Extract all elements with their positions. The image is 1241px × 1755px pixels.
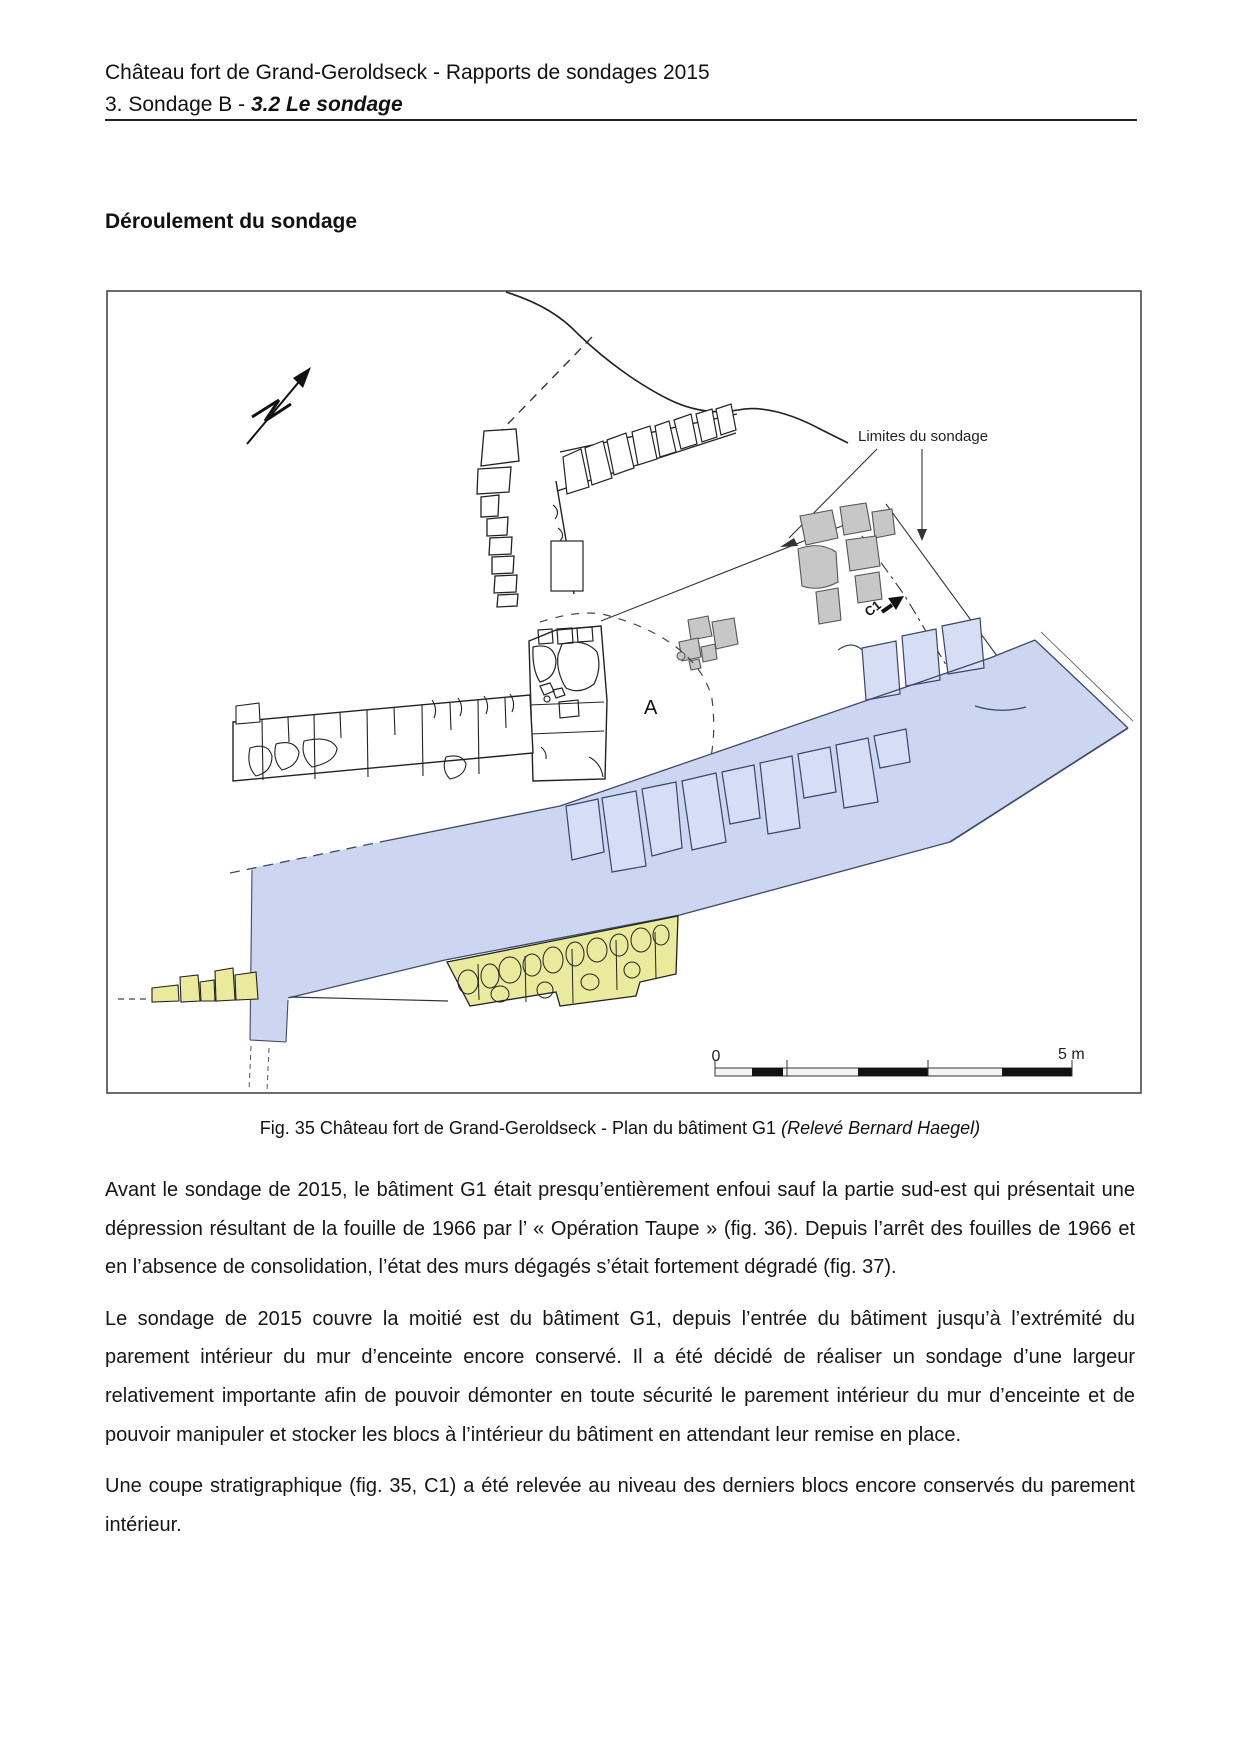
room-a-label: A (644, 697, 658, 719)
paragraph-coupe-stratigraphique: Une coupe stratigraphique (fig. 35, C1) … (105, 1467, 1135, 1544)
report-title: Château fort de Grand-Geroldseck - Rappo… (105, 61, 710, 84)
central-wall (529, 626, 607, 781)
scale-zero-label: 0 (712, 1048, 721, 1065)
caption-text: Fig. 35 Château fort de Grand-Geroldseck… (260, 1118, 781, 1138)
limites-du-sondage-label: Limites du sondage (858, 428, 988, 445)
chapter-label: 3. Sondage B - (105, 93, 251, 116)
figure-caption: Fig. 35 Château fort de Grand-Geroldseck… (105, 1118, 1135, 1139)
paragraph-avant-sondage: Avant le sondage de 2015, le bâtiment G1… (105, 1171, 1135, 1287)
header-line-1: Château fort de Grand-Geroldseck - Rappo… (105, 58, 1135, 88)
header-divider (105, 119, 1137, 121)
paragraph-sondage-2015: Le sondage de 2015 couvre la moitié est … (105, 1300, 1135, 1454)
body-text: Avant le sondage de 2015, le bâtiment G1… (105, 1171, 1135, 1557)
figure-plan-batiment-g1: 0 5 m Limites du sondage A C1 (106, 290, 1142, 1094)
document-page: Château fort de Grand-Geroldseck - Rappo… (0, 0, 1241, 1755)
caption-credit: (Relevé Bernard Haegel) (781, 1118, 980, 1138)
header-line-2: 3. Sondage B - 3.2 Le sondage (105, 90, 1135, 120)
section-heading: Déroulement du sondage (105, 210, 1135, 234)
scale-five-label: 5 m (1058, 1046, 1085, 1063)
subsection-label: 3.2 Le sondage (251, 93, 403, 116)
